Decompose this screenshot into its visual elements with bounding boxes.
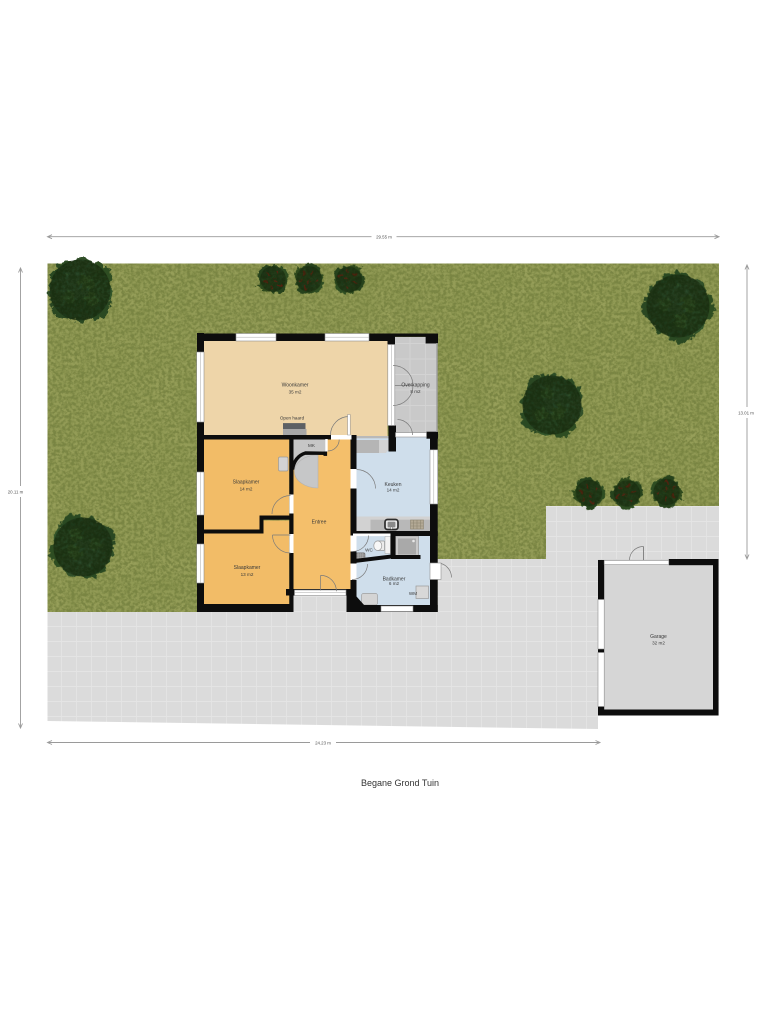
svg-text:6 m2: 6 m2 — [389, 581, 400, 586]
svg-text:WM: WM — [409, 591, 417, 596]
svg-text:13.01 m: 13.01 m — [738, 410, 754, 415]
svg-text:32 m2: 32 m2 — [652, 641, 665, 646]
svg-text:20.11 m: 20.11 m — [8, 490, 24, 495]
svg-text:Open haard: Open haard — [280, 415, 305, 420]
svg-text:Entree: Entree — [312, 520, 327, 526]
svg-text:14 m2: 14 m2 — [240, 487, 253, 492]
svg-text:MK: MK — [308, 443, 316, 448]
svg-text:8 m2: 8 m2 — [410, 389, 421, 394]
svg-text:24.23 m: 24.23 m — [315, 740, 331, 745]
svg-text:29.55 m: 29.55 m — [376, 234, 392, 239]
svg-text:Woonkamer: Woonkamer — [282, 383, 309, 389]
svg-text:Garage: Garage — [650, 634, 667, 640]
svg-text:WC: WC — [365, 548, 373, 553]
svg-text:Begane Grond Tuin: Begane Grond Tuin — [361, 778, 439, 788]
svg-text:14 m2: 14 m2 — [387, 488, 400, 493]
svg-text:Slaapkamer: Slaapkamer — [233, 480, 260, 486]
svg-text:Overkapping: Overkapping — [401, 383, 430, 389]
svg-text:13 m2: 13 m2 — [241, 572, 254, 577]
svg-text:35 m2: 35 m2 — [289, 390, 302, 395]
svg-text:Slaapkamer: Slaapkamer — [234, 565, 261, 571]
